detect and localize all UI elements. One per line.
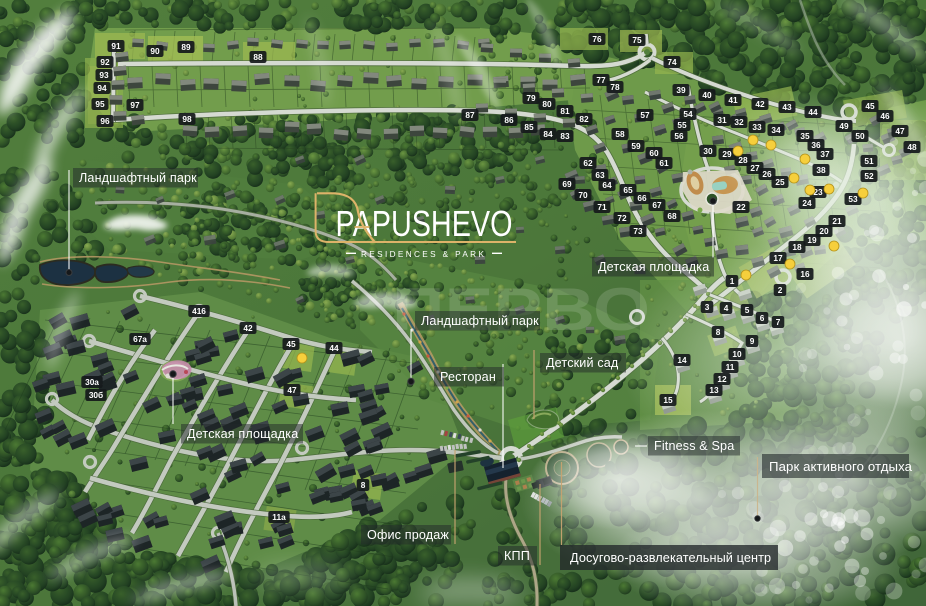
svg-text:58: 58 xyxy=(615,129,625,139)
svg-text:79: 79 xyxy=(526,93,536,103)
svg-text:44: 44 xyxy=(329,343,339,353)
svg-text:64: 64 xyxy=(602,180,612,190)
svg-text:57: 57 xyxy=(640,110,650,120)
svg-text:90: 90 xyxy=(150,46,160,56)
svg-text:32: 32 xyxy=(734,117,744,127)
svg-text:53: 53 xyxy=(848,194,858,204)
svg-text:84: 84 xyxy=(543,129,553,139)
svg-text:5: 5 xyxy=(745,305,750,315)
svg-text:54: 54 xyxy=(683,109,693,119)
svg-text:24: 24 xyxy=(802,198,812,208)
svg-text:Досугово-развлекательный центр: Досугово-развлекательный центр xyxy=(570,551,771,565)
svg-text:20: 20 xyxy=(819,226,829,236)
svg-text:56: 56 xyxy=(674,131,684,141)
svg-text:67а: 67а xyxy=(133,334,147,344)
svg-text:55: 55 xyxy=(677,120,687,130)
svg-text:82: 82 xyxy=(579,114,589,124)
svg-text:14: 14 xyxy=(677,355,687,365)
svg-text:41: 41 xyxy=(728,95,738,105)
svg-text:42: 42 xyxy=(755,99,765,109)
svg-text:63: 63 xyxy=(595,170,605,180)
svg-text:95: 95 xyxy=(95,99,105,109)
svg-text:7: 7 xyxy=(776,317,781,327)
svg-text:Парк активного отдыха: Парк активного отдыха xyxy=(769,459,913,474)
svg-text:28: 28 xyxy=(738,155,748,165)
svg-text:70: 70 xyxy=(578,190,588,200)
svg-text:98: 98 xyxy=(182,114,192,124)
svg-text:74: 74 xyxy=(667,57,677,67)
svg-text:3: 3 xyxy=(705,302,710,312)
svg-text:85: 85 xyxy=(524,122,534,132)
svg-text:52: 52 xyxy=(864,171,874,181)
svg-text:34: 34 xyxy=(771,125,781,135)
svg-text:17: 17 xyxy=(773,253,783,263)
svg-text:48: 48 xyxy=(907,142,917,152)
svg-text:46: 46 xyxy=(880,111,890,121)
svg-text:60: 60 xyxy=(649,148,659,158)
svg-text:6: 6 xyxy=(760,313,765,323)
svg-text:59: 59 xyxy=(631,141,641,151)
svg-text:29: 29 xyxy=(722,149,732,159)
svg-text:96: 96 xyxy=(100,116,110,126)
svg-text:51: 51 xyxy=(864,156,874,166)
svg-text:68: 68 xyxy=(667,211,677,221)
svg-text:Ресторан: Ресторан xyxy=(440,370,496,384)
svg-text:42: 42 xyxy=(243,323,253,333)
svg-text:30: 30 xyxy=(703,146,713,156)
svg-text:88: 88 xyxy=(253,52,263,62)
svg-text:65: 65 xyxy=(623,185,633,195)
svg-text:47: 47 xyxy=(895,126,905,136)
svg-text:80: 80 xyxy=(542,99,552,109)
svg-text:66: 66 xyxy=(637,193,647,203)
svg-text:92: 92 xyxy=(100,57,110,67)
svg-text:19: 19 xyxy=(807,235,817,245)
svg-text:93: 93 xyxy=(99,70,109,80)
svg-text:26: 26 xyxy=(762,169,772,179)
svg-text:61: 61 xyxy=(659,158,669,168)
svg-text:86: 86 xyxy=(504,115,514,125)
svg-text:1: 1 xyxy=(730,276,735,286)
svg-text:45: 45 xyxy=(286,339,296,349)
svg-text:81: 81 xyxy=(560,106,570,116)
svg-text:44: 44 xyxy=(808,107,818,117)
svg-text:69: 69 xyxy=(562,179,572,189)
svg-text:97: 97 xyxy=(130,100,140,110)
svg-text:Детский сад: Детский сад xyxy=(546,356,619,370)
svg-text:72: 72 xyxy=(617,213,627,223)
svg-text:33: 33 xyxy=(752,122,762,132)
svg-text:8: 8 xyxy=(361,480,366,490)
svg-text:Детская площадка: Детская площадка xyxy=(598,260,709,274)
svg-text:49: 49 xyxy=(839,121,849,131)
svg-text:15: 15 xyxy=(663,395,673,405)
svg-text:94: 94 xyxy=(97,83,107,93)
svg-text:21: 21 xyxy=(832,216,842,226)
svg-text:КПП: КПП xyxy=(504,549,530,563)
svg-text:30б: 30б xyxy=(89,390,103,400)
svg-text:62: 62 xyxy=(583,158,593,168)
svg-text:77: 77 xyxy=(596,75,606,85)
svg-text:91: 91 xyxy=(111,41,121,51)
svg-text:75: 75 xyxy=(632,35,642,45)
svg-text:78: 78 xyxy=(610,82,620,92)
svg-text:89: 89 xyxy=(181,42,191,52)
svg-text:4: 4 xyxy=(724,303,729,313)
svg-text:87: 87 xyxy=(465,110,475,120)
svg-text:30а: 30а xyxy=(85,377,99,387)
svg-text:18: 18 xyxy=(792,242,802,252)
svg-text:45: 45 xyxy=(865,101,875,111)
svg-text:Fitness & Spa: Fitness & Spa xyxy=(654,439,734,453)
svg-text:Детская площадка: Детская площадка xyxy=(187,427,298,441)
svg-text:ПЕРВО: ПЕРВО xyxy=(392,276,650,343)
svg-text:10: 10 xyxy=(732,349,742,359)
svg-text:25: 25 xyxy=(775,177,785,187)
svg-text:13: 13 xyxy=(709,385,719,395)
svg-text:Ландшафтный парк: Ландшафтный парк xyxy=(79,171,197,185)
svg-text:Ландшафтный парк: Ландшафтный парк xyxy=(421,314,539,328)
svg-text:Офис продаж: Офис продаж xyxy=(367,528,449,542)
svg-text:31: 31 xyxy=(717,115,727,125)
svg-text:9: 9 xyxy=(750,336,755,346)
svg-text:11а: 11а xyxy=(272,512,286,522)
svg-text:38: 38 xyxy=(816,165,826,175)
svg-text:40: 40 xyxy=(702,90,712,100)
svg-text:43: 43 xyxy=(782,102,792,112)
svg-text:11: 11 xyxy=(726,362,735,372)
svg-text:37: 37 xyxy=(820,149,830,159)
svg-text:83: 83 xyxy=(560,131,570,141)
svg-text:22: 22 xyxy=(736,202,746,212)
svg-text:8: 8 xyxy=(716,327,721,337)
svg-text:76: 76 xyxy=(592,34,602,44)
svg-text:50: 50 xyxy=(855,131,865,141)
svg-text:39: 39 xyxy=(676,85,686,95)
svg-text:67: 67 xyxy=(652,200,662,210)
svg-text:416: 416 xyxy=(192,306,206,316)
svg-text:2: 2 xyxy=(778,285,783,295)
svg-text:RESIDENCES & PARK: RESIDENCES & PARK xyxy=(361,250,487,259)
svg-text:73: 73 xyxy=(633,226,643,236)
svg-text:16: 16 xyxy=(800,269,810,279)
svg-text:12: 12 xyxy=(717,374,727,384)
svg-text:71: 71 xyxy=(597,202,607,212)
svg-text:47: 47 xyxy=(287,385,297,395)
